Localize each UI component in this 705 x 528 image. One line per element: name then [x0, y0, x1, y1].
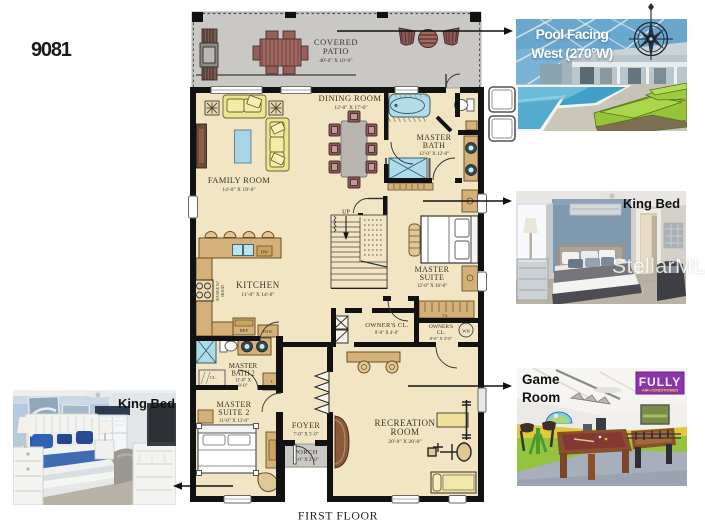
svg-text:8'-0" X 3'-0": 8'-0" X 3'-0" [430, 336, 453, 341]
svg-text:11'-0" X 14'-0": 11'-0" X 14'-0" [241, 292, 274, 298]
svg-text:12'-0" X 16'-0": 12'-0" X 16'-0" [417, 284, 447, 289]
svg-text:StellarMLS: StellarMLS [612, 255, 705, 278]
svg-text:DINING ROOM: DINING ROOM [319, 93, 382, 103]
svg-text:L: L [271, 379, 274, 384]
svg-text:FAMILY ROOM: FAMILY ROOM [208, 175, 270, 185]
svg-text:REF: REF [240, 328, 249, 333]
svg-text:11'-0" X: 11'-0" X [235, 379, 252, 384]
svg-text:CL.: CL. [443, 313, 450, 318]
svg-text:7'-0" X 5'-0": 7'-0" X 5'-0" [293, 433, 318, 438]
svg-text:OWNER'S CL.: OWNER'S CL. [365, 322, 409, 329]
svg-text:FIRST FLOOR: FIRST FLOOR [298, 509, 378, 523]
svg-text:PAN.: PAN. [263, 329, 273, 334]
svg-text:PATIO: PATIO [323, 46, 349, 56]
svg-text:DW: DW [261, 250, 269, 255]
svg-text:West (270°W): West (270°W) [531, 45, 612, 61]
svg-text:WH: WH [462, 328, 470, 333]
svg-text:12'-0" X 12'-0": 12'-0" X 12'-0" [419, 152, 449, 157]
svg-text:12'-0" X 17'-0": 12'-0" X 17'-0" [334, 105, 367, 111]
svg-text:ROOM: ROOM [390, 427, 419, 437]
svg-text:6'-0" X 2'-0": 6'-0" X 2'-0" [293, 458, 318, 463]
svg-text:SUITE: SUITE [420, 273, 445, 282]
svg-text:BATH: BATH [423, 141, 446, 150]
svg-text:14'-0" X 19'-0": 14'-0" X 19'-0" [222, 187, 255, 193]
svg-text:40'-0" X 10'-0": 40'-0" X 10'-0" [319, 58, 352, 64]
svg-text:UP: UP [342, 210, 350, 216]
svg-text:Game: Game [522, 372, 560, 387]
svg-text:8'-0" X 4'-0": 8'-0" X 4'-0" [375, 331, 399, 336]
svg-text:HOOD: HOOD [220, 285, 225, 297]
svg-text:CL.: CL. [210, 375, 217, 380]
svg-text:8'-0": 8'-0" [238, 384, 247, 389]
svg-text:Room: Room [522, 390, 560, 405]
svg-text:FOYER: FOYER [292, 421, 320, 430]
svg-text:20'-0" X 20'-0": 20'-0" X 20'-0" [388, 439, 421, 445]
svg-text:Pool Facing: Pool Facing [536, 26, 609, 42]
svg-text:PORCH: PORCH [294, 449, 318, 456]
svg-text:SUITE 2: SUITE 2 [218, 408, 249, 417]
svg-text:KITCHEN: KITCHEN [236, 280, 280, 290]
svg-text:King Bed: King Bed [623, 196, 680, 211]
svg-text:King Bed: King Bed [118, 396, 175, 411]
svg-text:9081: 9081 [31, 39, 72, 61]
svg-text:AIR-CONDITIONED: AIR-CONDITIONED [642, 388, 678, 393]
svg-text:11'-0" X 13'-0": 11'-0" X 13'-0" [219, 419, 249, 424]
